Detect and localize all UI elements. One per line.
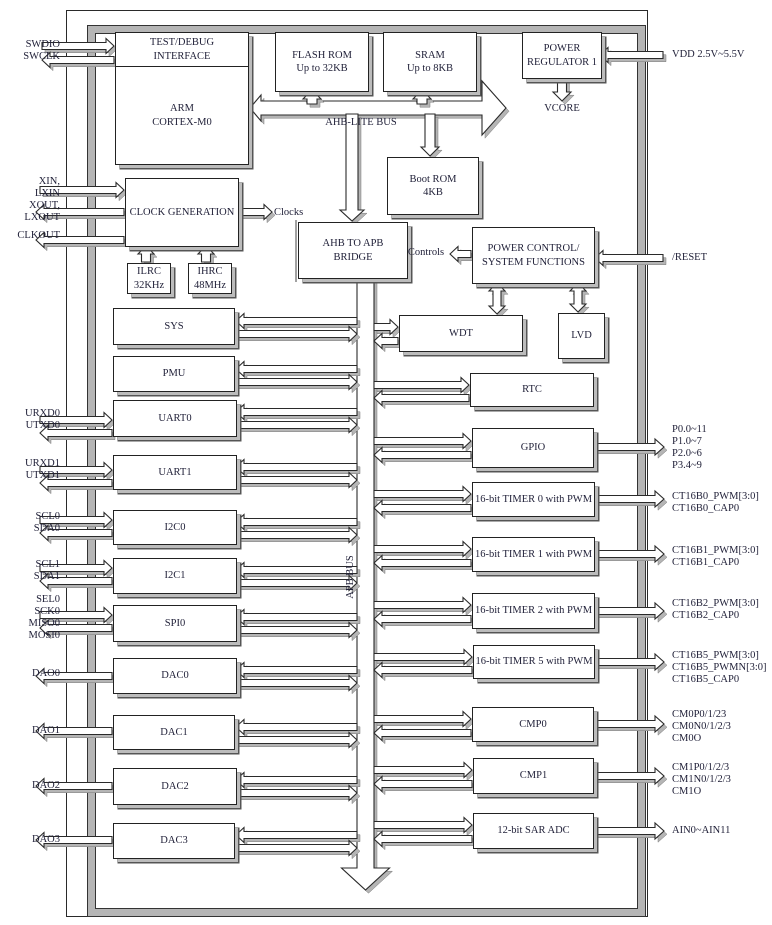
block-ilrc: ILRC 32KHz [127, 263, 171, 294]
block-spi0: SPI0 [113, 605, 237, 642]
block-flash-rom: FLASH ROM Up to 32KB [275, 32, 369, 92]
block-power-control: POWER CONTROL/ SYSTEM FUNCTIONS [472, 227, 595, 284]
pin-label-clkout: CLKOUT [0, 230, 60, 242]
block-clock-generation: CLOCK GENERATION [125, 178, 239, 247]
block-timer2: 16-bit TIMER 2 with PWM [472, 593, 595, 629]
bus-label-apb: APB BUS [345, 547, 359, 607]
pin-label-urxd1-utxd1: URXD1 UTXD1 [0, 458, 60, 482]
label-vcore: VCORE [536, 103, 588, 115]
pin-label-cmp1-pins: CM1P0/1/2/3 CM1N0/1/2/3 CM1O [672, 762, 772, 798]
pin-label-ct16b2: CT16B2_PWM[3:0] CT16B2_CAP0 [672, 598, 772, 622]
block-boot-rom: Boot ROM 4KB [387, 157, 479, 215]
block-cpu: TEST/DEBUG INTERFACE ARM CORTEX-M0 [115, 32, 249, 165]
block-ahb-apb-bridge: AHB TO APB BRIDGE [298, 222, 408, 279]
block-wdt: WDT [399, 315, 523, 352]
pin-label-vdd: VDD 2.5V~5.5V [672, 49, 772, 61]
pin-label-ct16b5: CT16B5_PWM[3:0] CT16B5_PWMN[3:0] CT16B5_… [672, 650, 772, 686]
label-clocks: Clocks [274, 207, 318, 219]
block-rtc: RTC [470, 373, 594, 407]
block-sys: SYS [113, 308, 235, 345]
block-timer0: 16-bit TIMER 0 with PWM [472, 482, 595, 517]
block-dac3: DAC3 [113, 823, 235, 859]
block-timer5: 16-bit TIMER 5 with PWM [473, 645, 595, 679]
bus-label-ahb-lite: AHB-LITE BUS [296, 117, 426, 128]
pin-label-ain: AIN0~AIN11 [672, 825, 772, 837]
block-sram: SRAM Up to 8KB [383, 32, 477, 92]
soc-block-diagram: TEST/DEBUG INTERFACE ARM CORTEX-M0 FLASH… [0, 0, 772, 925]
block-dac0: DAC0 [113, 658, 237, 694]
pin-label-xin-lxin: XIN, LXIN [0, 176, 60, 200]
pin-label-ct16b0: CT16B0_PWM[3:0] CT16B0_CAP0 [672, 491, 772, 515]
block-i2c1: I2C1 [113, 558, 237, 594]
block-ihrc: IHRC 48MHz [188, 263, 232, 294]
block-pmu: PMU [113, 356, 235, 392]
block-timer1: 16-bit TIMER 1 with PWM [472, 537, 595, 572]
block-test-debug-interface: TEST/DEBUG INTERFACE [116, 33, 248, 67]
pin-label-scl1-sda1: SCL1 SDA1 [0, 559, 60, 583]
block-adc: 12-bit SAR ADC [473, 813, 594, 849]
block-cmp0: CMP0 [472, 707, 594, 742]
block-i2c0: I2C0 [113, 510, 237, 545]
block-dac1: DAC1 [113, 715, 235, 750]
block-power-regulator-1: POWER REGULATOR 1 [522, 32, 602, 79]
pin-label-dao3: DAO3 [0, 834, 60, 846]
block-uart0: UART0 [113, 400, 237, 437]
pin-label-dao2: DAO2 [0, 780, 60, 792]
pin-label-ct16b1: CT16B1_PWM[3:0] CT16B1_CAP0 [672, 545, 772, 569]
block-dac2: DAC2 [113, 768, 237, 805]
block-gpio: GPIO [472, 428, 594, 468]
block-arm-cortex-m0: ARM CORTEX-M0 [116, 67, 248, 164]
pin-label-xout-lxout: XOUT, LXOUT [0, 200, 60, 224]
pin-label-gpio-ports: P0.0~11 P1.0~7 P2.0~6 P3.4~9 [672, 424, 772, 472]
pin-label-scl0-sda0: SCL0 SDA0 [0, 511, 60, 535]
block-uart1: UART1 [113, 455, 237, 490]
pin-label-urxd0-utxd0: URXD0 UTXD0 [0, 408, 60, 432]
block-lvd: LVD [558, 313, 605, 359]
pin-label-dao1: DAO1 [0, 725, 60, 737]
pin-label-reset: /RESET [672, 252, 772, 264]
pin-label-swdio-swclk: SWDIO SWCLK [0, 39, 60, 63]
pin-label-dao0: DAO0 [0, 668, 60, 680]
label-controls: Controls [404, 247, 448, 259]
block-cmp1: CMP1 [473, 758, 594, 794]
pin-label-spi0-pins: SEL0 SCK0 MISO0 MOSI0 [0, 594, 60, 642]
pin-label-cmp0-pins: CM0P0/1/23 CM0N0/1/2/3 CM0O [672, 709, 772, 745]
